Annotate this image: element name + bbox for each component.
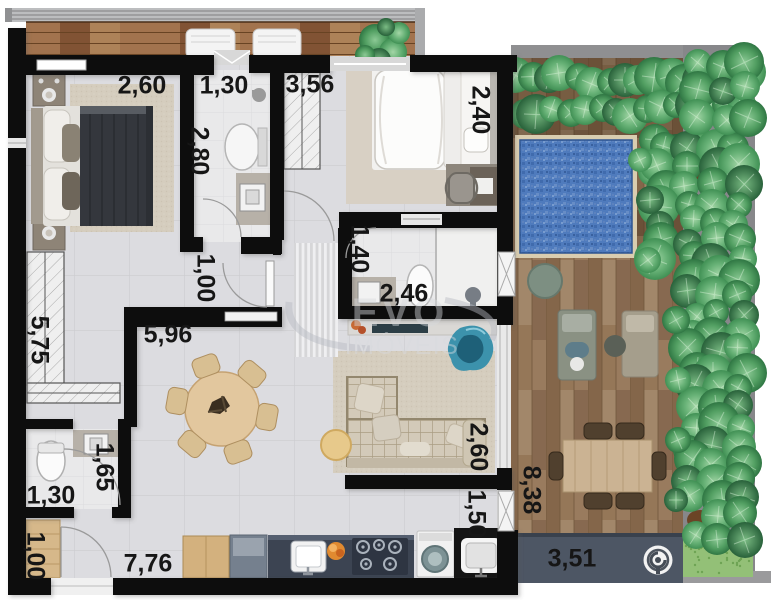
svg-text:5,96: 5,96: [144, 321, 193, 349]
svg-text:2,60: 2,60: [464, 423, 492, 472]
svg-text:1,00: 1,00: [191, 254, 219, 303]
svg-text:1,40: 1,40: [345, 225, 373, 274]
svg-text:1,00: 1,00: [21, 532, 49, 581]
svg-text:2,60: 2,60: [118, 72, 167, 100]
svg-text:5,75: 5,75: [25, 316, 53, 365]
svg-text:3,56: 3,56: [286, 71, 335, 99]
svg-text:3,51: 3,51: [548, 545, 597, 573]
svg-text:1,65: 1,65: [90, 443, 118, 492]
svg-text:2,40: 2,40: [466, 86, 494, 135]
svg-text:1,30: 1,30: [200, 72, 249, 100]
svg-text:1,30: 1,30: [27, 482, 76, 510]
svg-text:1,50: 1,50: [462, 490, 490, 539]
svg-text:2,46: 2,46: [380, 280, 429, 308]
svg-text:7,76: 7,76: [124, 550, 173, 578]
svg-text:8,38: 8,38: [517, 466, 545, 515]
svg-text:2,80: 2,80: [185, 127, 213, 176]
svg-text:IMÓVEIS: IMÓVEIS: [345, 331, 460, 360]
